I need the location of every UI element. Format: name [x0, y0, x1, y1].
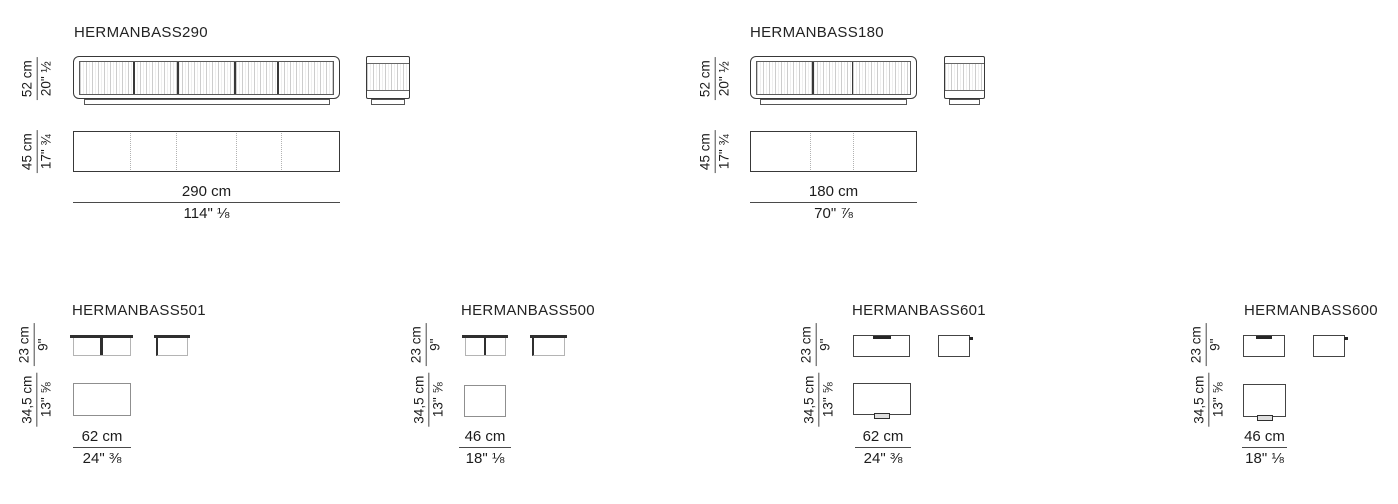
drawer-handle-side [969, 337, 973, 340]
center-divider [484, 338, 486, 356]
bench-body [532, 338, 565, 357]
wood-grain-doors [79, 61, 334, 95]
width-inch-value: 114" ⅛ [73, 203, 340, 222]
front-view-drawing [70, 335, 133, 356]
furniture-spec-sheet: HERMANBASS290 52 cm 20" ½ 45 cm 17" ¾ 2 [0, 0, 1398, 504]
side-view-drawing [530, 335, 567, 356]
door-division-dotted-line [810, 133, 811, 170]
drawer-handle-side [1344, 337, 1348, 340]
width-cm-value: 62 cm [855, 428, 911, 448]
height-cm-value: 23 cm [408, 324, 426, 367]
door-divider [177, 62, 179, 94]
height-dimension-label: 23 cm 9" [1184, 323, 1228, 367]
depth-cm-value: 45 cm [19, 131, 37, 174]
wood-grain-doors [756, 61, 911, 95]
height-dimension-label: 52 cm 20" ½ [14, 50, 60, 108]
depth-dimension-label: 45 cm 17" ¾ [14, 125, 60, 179]
plinth [84, 99, 330, 105]
front-view-drawing [1243, 335, 1285, 357]
bench-body [73, 338, 131, 357]
width-dimension-label: 290 cm 114" ⅛ [73, 183, 340, 222]
width-inch-value: 70" ⅞ [750, 203, 917, 222]
width-dimension-label: 62 cm 24" ⅜ [73, 428, 131, 467]
front-view-drawing [750, 56, 917, 99]
height-cm-value: 23 cm [16, 324, 34, 367]
side-view-drawing [154, 335, 190, 356]
depth-inch-value: 17" ¾ [715, 131, 732, 174]
depth-cm-value: 34,5 cm [411, 373, 429, 427]
front-view-drawing [73, 56, 340, 99]
depth-cm-value: 34,5 cm [801, 373, 819, 427]
depth-inch-value: 13" ⅝ [820, 373, 837, 427]
product-title-hermanbass500: HERMANBASS500 [461, 302, 595, 319]
width-inch-value: 24" ⅜ [855, 448, 911, 467]
width-inch-value: 18" ⅛ [1242, 448, 1287, 467]
height-inch-value: 9" [426, 324, 443, 367]
door-divider [234, 62, 236, 94]
height-inch-value: 9" [1206, 324, 1223, 367]
depth-dimension-label: 34,5 cm 13" ⅝ [794, 372, 844, 428]
bench-body [465, 338, 506, 357]
door-division-dotted-line [853, 133, 854, 170]
top-view-drawing [464, 385, 506, 417]
height-dimension-label: 23 cm 9" [12, 323, 56, 367]
top-view-drawing [853, 383, 911, 415]
height-dimension-label: 23 cm 9" [404, 323, 448, 367]
side-view-drawing [944, 56, 985, 99]
door-division-dotted-line [281, 133, 282, 170]
height-cm-value: 23 cm [798, 324, 816, 367]
width-dimension-label: 180 cm 70" ⅞ [750, 183, 917, 222]
depth-cm-value: 45 cm [697, 131, 715, 174]
plinth [949, 99, 980, 105]
top-view-drawing [73, 383, 131, 416]
product-title-hermanbass501: HERMANBASS501 [72, 302, 206, 319]
width-cm-value: 62 cm [73, 428, 131, 448]
door-divider [133, 62, 135, 94]
door-divider [812, 62, 814, 94]
width-inch-value: 18" ⅛ [459, 448, 511, 467]
plinth [371, 99, 405, 105]
width-cm-value: 46 cm [459, 428, 511, 448]
side-wood-grain [367, 64, 409, 91]
height-inch-value: 20" ½ [715, 58, 732, 101]
door-division-dotted-line [236, 133, 237, 170]
depth-inch-value: 13" ⅝ [38, 373, 55, 427]
drawer-handle [1256, 336, 1272, 339]
width-dimension-label: 46 cm 18" ⅛ [1242, 428, 1287, 467]
height-inch-value: 9" [816, 324, 833, 367]
bench-body [156, 338, 188, 357]
depth-dimension-label: 34,5 cm 13" ⅝ [404, 372, 454, 428]
depth-dimension-label: 34,5 cm 13" ⅝ [1184, 372, 1234, 428]
top-view-drawing [750, 131, 917, 172]
center-divider [100, 338, 102, 356]
side-view-drawing [366, 56, 410, 99]
depth-dimension-label: 34,5 cm 13" ⅝ [12, 372, 62, 428]
width-dimension-label: 62 cm 24" ⅜ [855, 428, 911, 467]
side-top-band [367, 57, 409, 64]
depth-cm-value: 34,5 cm [19, 373, 37, 427]
depth-cm-value: 34,5 cm [1191, 373, 1209, 427]
width-cm-value: 290 cm [73, 183, 340, 203]
door-divider [277, 62, 279, 94]
side-view-drawing [938, 335, 970, 357]
depth-inch-value: 13" ⅝ [1210, 373, 1227, 427]
depth-dimension-label: 45 cm 17" ¾ [692, 125, 738, 179]
product-title-hermanbass601: HERMANBASS601 [852, 302, 986, 319]
height-dimension-label: 52 cm 20" ½ [692, 50, 738, 108]
width-inch-value: 24" ⅜ [73, 448, 131, 467]
height-inch-value: 20" ½ [37, 58, 54, 101]
width-dimension-label: 46 cm 18" ⅛ [459, 428, 511, 467]
height-cm-value: 23 cm [1188, 324, 1206, 367]
width-cm-value: 180 cm [750, 183, 917, 203]
door-divider [852, 62, 854, 94]
top-view-drawing [73, 131, 340, 172]
depth-inch-value: 17" ¾ [37, 131, 54, 174]
door-division-dotted-line [130, 133, 131, 170]
side-wood-grain [945, 64, 984, 91]
door-division-dotted-line [176, 133, 177, 170]
drawer-handle-top [874, 413, 890, 419]
height-cm-value: 52 cm [19, 58, 37, 101]
height-dimension-label: 23 cm 9" [794, 323, 838, 367]
drawer-handle-top [1257, 415, 1273, 421]
depth-inch-value: 13" ⅝ [430, 373, 447, 427]
front-view-drawing [462, 335, 508, 356]
height-cm-value: 52 cm [697, 58, 715, 101]
side-view-drawing [1313, 335, 1345, 357]
product-title-hermanbass290: HERMANBASS290 [74, 24, 208, 41]
product-title-hermanbass180: HERMANBASS180 [750, 24, 884, 41]
front-view-drawing [853, 335, 910, 357]
width-cm-value: 46 cm [1242, 428, 1287, 448]
side-top-band [945, 57, 984, 64]
drawer-handle [873, 336, 891, 339]
plinth [760, 99, 907, 105]
product-title-hermanbass600: HERMANBASS600 [1244, 302, 1378, 319]
height-inch-value: 9" [34, 324, 51, 367]
top-view-drawing [1243, 384, 1286, 417]
